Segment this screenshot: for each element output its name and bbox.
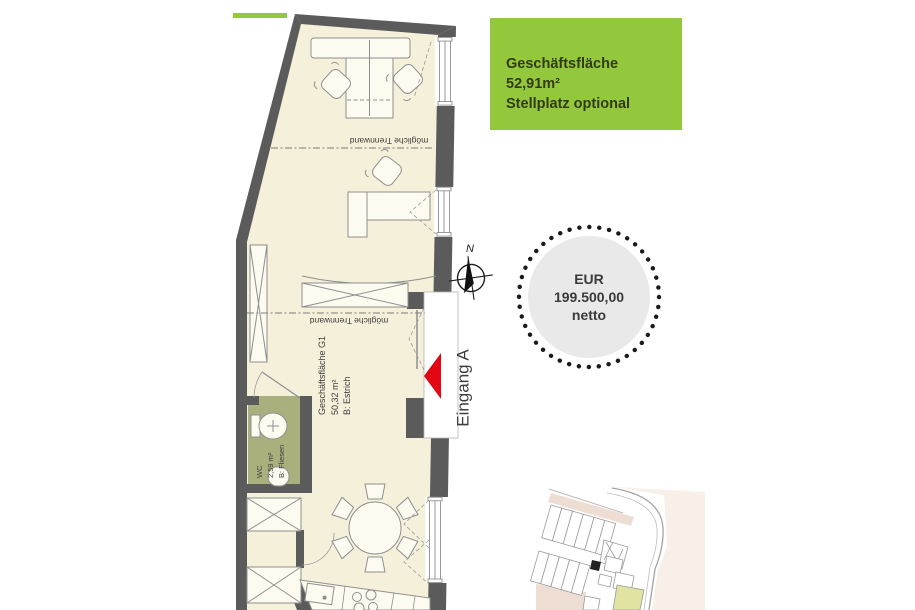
site-marker <box>590 560 601 571</box>
dining-chair <box>365 484 385 499</box>
page: Geschäftsfläche 52,91m² Stellplatz optio… <box>0 0 915 610</box>
partition-top-label: mögliche Trennwand <box>350 136 429 146</box>
wardrobe-x-tall <box>250 245 267 362</box>
room-wc-name: WC <box>255 465 264 478</box>
room-g1-area: 50,32 m² <box>330 379 340 415</box>
entrance-label: Eingang A <box>453 349 472 427</box>
floor-plan-svg: Eingang A mögliche Trennwand <box>0 0 915 610</box>
compass-north-label: N <box>466 243 474 255</box>
kitchen-sink-icon <box>305 583 334 605</box>
round-table <box>349 502 401 554</box>
site-plan <box>530 487 705 610</box>
dining-chair <box>365 557 385 572</box>
partition-mid-label: mögliche Trennwand <box>310 316 389 326</box>
toilet-icon <box>251 413 287 439</box>
site-highlighted-unit <box>613 585 644 610</box>
wardrobe-x-wide <box>302 283 408 307</box>
room-g1-name: Geschäftsfläche G1 <box>317 336 327 415</box>
room-wc-finish: B: Fliesen <box>277 445 286 478</box>
room-wc-area: 2,59 m² <box>266 452 275 478</box>
room-g1-finish: B: Estrich <box>342 376 352 415</box>
